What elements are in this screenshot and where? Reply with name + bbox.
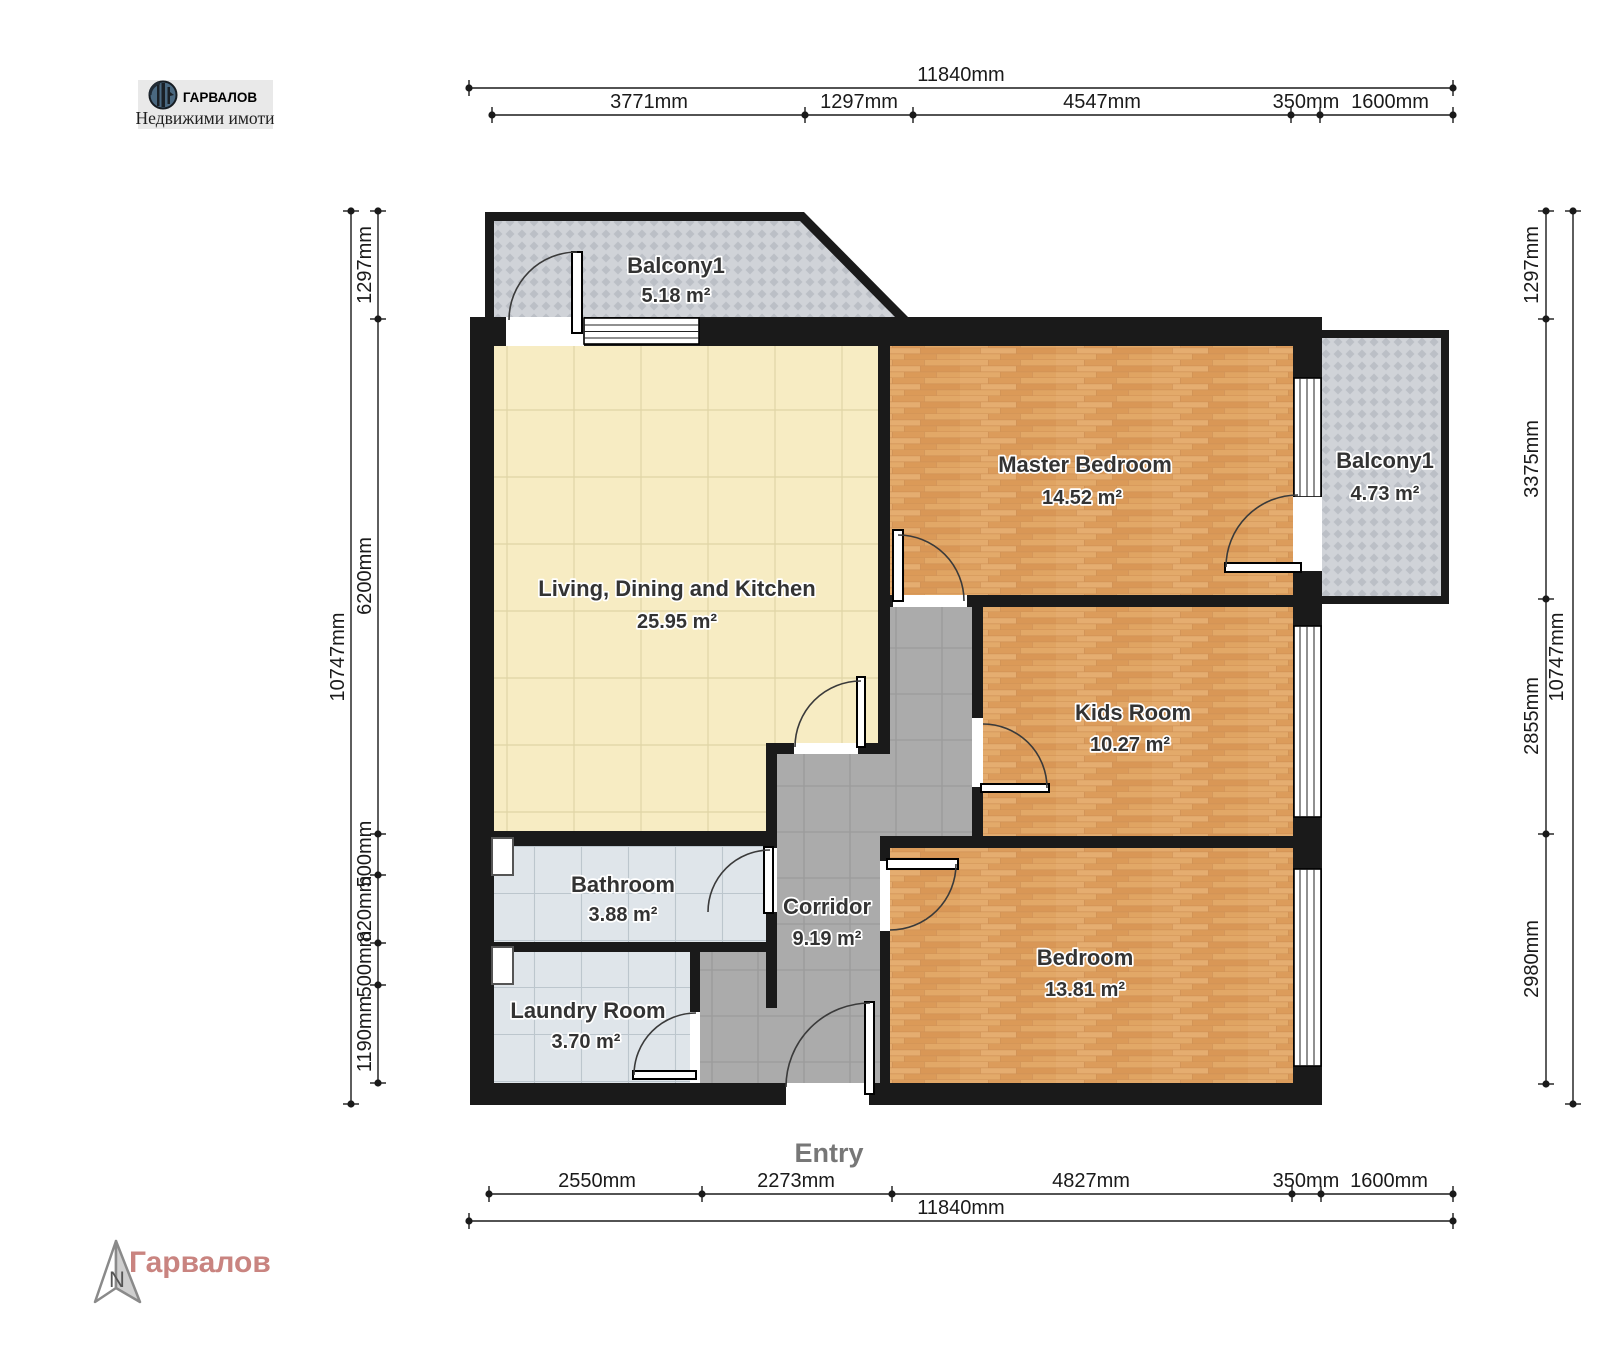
svg-text:ГАРВАЛОВ: ГАРВАЛОВ — [183, 90, 258, 105]
svg-text:3.88 m²: 3.88 m² — [589, 904, 658, 926]
svg-text:11840mm: 11840mm — [917, 64, 1004, 86]
svg-text:1190mm: 1190mm — [354, 996, 376, 1072]
svg-text:Bedroom: Bedroom — [1037, 945, 1134, 970]
svg-text:1297mm: 1297mm — [1521, 226, 1543, 304]
svg-text:10747mm: 10747mm — [1546, 613, 1568, 702]
svg-text:5.18 m²: 5.18 m² — [642, 285, 711, 307]
svg-text:3771mm: 3771mm — [610, 91, 688, 113]
svg-text:14.52 m²: 14.52 m² — [1042, 487, 1122, 509]
svg-text:Balcony1: Balcony1 — [1336, 448, 1434, 473]
svg-text:6200mm: 6200mm — [354, 537, 376, 615]
svg-text:N: N — [109, 1267, 125, 1292]
svg-text:350mm: 350mm — [1273, 91, 1340, 113]
svg-text:10747mm: 10747mm — [327, 613, 349, 702]
svg-text:1600mm: 1600mm — [1350, 1170, 1428, 1192]
svg-text:Corridor: Corridor — [783, 894, 871, 919]
svg-text:3375mm: 3375mm — [1521, 420, 1543, 498]
svg-text:Недвижими имоти: Недвижими имоти — [136, 108, 275, 128]
svg-text:1600mm: 1600mm — [1351, 91, 1429, 113]
svg-text:350mm: 350mm — [1273, 1170, 1340, 1192]
svg-text:Master Bedroom: Master Bedroom — [998, 452, 1172, 477]
svg-text:Гарвалов: Гарвалов — [129, 1246, 271, 1279]
svg-text:500mm: 500mm — [354, 931, 376, 998]
svg-text:9.19 m²: 9.19 m² — [793, 928, 862, 950]
svg-text:2550mm: 2550mm — [558, 1170, 636, 1192]
svg-text:4827mm: 4827mm — [1052, 1170, 1130, 1192]
svg-text:2855mm: 2855mm — [1521, 677, 1543, 755]
svg-text:Kids Room: Kids Room — [1075, 700, 1191, 725]
svg-text:4.73 m²: 4.73 m² — [1351, 483, 1420, 505]
svg-text:13.81 m²: 13.81 m² — [1045, 979, 1125, 1001]
svg-text:Living, Dining and Kitchen: Living, Dining and Kitchen — [538, 576, 815, 601]
svg-text:1297mm: 1297mm — [354, 226, 376, 304]
svg-text:4547mm: 4547mm — [1063, 91, 1141, 113]
svg-text:Balcony1: Balcony1 — [627, 253, 725, 278]
svg-text:11840mm: 11840mm — [917, 1197, 1004, 1219]
svg-text:2980mm: 2980mm — [1521, 920, 1543, 998]
svg-text:2273mm: 2273mm — [757, 1170, 835, 1192]
svg-text:10.27 m²: 10.27 m² — [1090, 734, 1170, 756]
svg-text:3.70 m²: 3.70 m² — [552, 1031, 621, 1053]
svg-text:25.95 m²: 25.95 m² — [637, 611, 717, 633]
svg-text:1297mm: 1297mm — [820, 91, 898, 113]
svg-text:Laundry Room: Laundry Room — [510, 998, 665, 1023]
svg-text:Bathroom: Bathroom — [571, 872, 675, 897]
svg-text:Entry: Entry — [794, 1138, 863, 1168]
